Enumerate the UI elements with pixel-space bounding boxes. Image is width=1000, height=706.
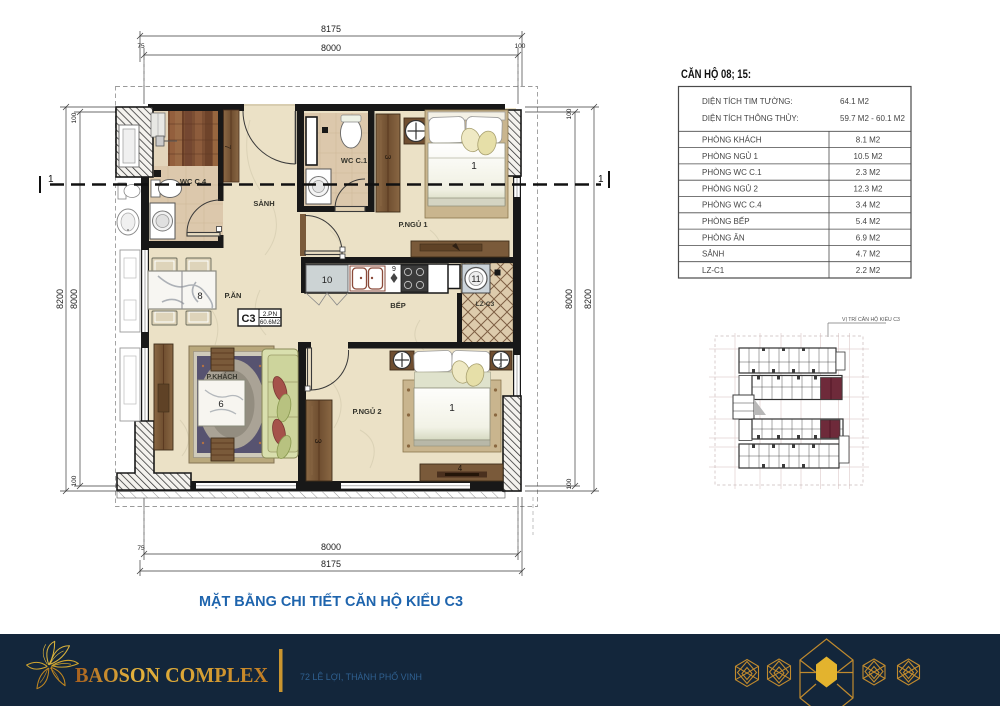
svg-text:SẢNH: SẢNH	[253, 199, 274, 208]
svg-text:1: 1	[598, 174, 604, 185]
svg-text:LZ-C3: LZ-C3	[476, 301, 495, 308]
svg-text:SẢNH: SẢNH	[702, 250, 724, 259]
svg-text:8175: 8175	[321, 24, 341, 34]
svg-text:100: 100	[71, 112, 78, 123]
svg-text:4.7 M2: 4.7 M2	[856, 250, 881, 259]
svg-text:10.5 M2: 10.5 M2	[854, 152, 883, 161]
svg-text:1: 1	[48, 174, 54, 185]
svg-text:8000: 8000	[321, 43, 341, 53]
svg-text:DIỆN TÍCH TIM TƯỜNG:: DIỆN TÍCH TIM TƯỜNG:	[702, 97, 793, 106]
svg-text:7: 7	[223, 145, 232, 150]
svg-text:60.6M2: 60.6M2	[260, 320, 281, 326]
svg-text:100: 100	[566, 478, 573, 489]
svg-text:2.2 M2: 2.2 M2	[856, 266, 881, 275]
svg-text:WC C.1: WC C.1	[341, 156, 367, 165]
svg-text:6: 6	[218, 399, 223, 410]
svg-text:2.PN: 2.PN	[263, 311, 278, 318]
svg-text:8200: 8200	[583, 289, 593, 309]
svg-text:P.ĂN: P.ĂN	[225, 291, 242, 300]
svg-text:100: 100	[515, 43, 526, 50]
svg-text:64.1 M2: 64.1 M2	[840, 97, 869, 106]
svg-text:CĂN HỘ 08; 15:: CĂN HỘ 08; 15:	[681, 66, 751, 81]
svg-text:9: 9	[392, 266, 396, 273]
svg-text:5.4 M2: 5.4 M2	[856, 217, 881, 226]
svg-text:BẾP: BẾP	[390, 300, 405, 310]
svg-text:12.3 M2: 12.3 M2	[854, 184, 883, 193]
svg-text:8175: 8175	[321, 559, 341, 569]
svg-text:P.KHÁCH: P.KHÁCH	[207, 372, 238, 381]
svg-text:3.4 M2: 3.4 M2	[856, 201, 881, 210]
svg-text:VỊ TRÍ CĂN HỘ KIỂU C3: VỊ TRÍ CĂN HỘ KIỂU C3	[842, 316, 900, 323]
svg-text:75: 75	[137, 545, 145, 552]
svg-text:2.3 M2: 2.3 M2	[856, 168, 881, 177]
svg-text:PHÒNG BẾP: PHÒNG BẾP	[702, 216, 750, 226]
svg-text:1: 1	[471, 161, 477, 172]
svg-text:59.7 M2 - 60.1 M2: 59.7 M2 - 60.1 M2	[840, 114, 905, 123]
svg-text:PHÒNG WC C.1: PHÒNG WC C.1	[702, 168, 762, 177]
svg-text:75: 75	[137, 43, 145, 50]
svg-text:3: 3	[383, 155, 393, 160]
svg-text:C3: C3	[241, 313, 255, 325]
svg-text:MẶT BẰNG CHI TIẾT CĂN HỘ KIỂU: MẶT BẰNG CHI TIẾT CĂN HỘ KIỂU C3	[199, 592, 463, 610]
svg-text:8000: 8000	[564, 289, 574, 309]
svg-text:P.NGỦ 2: P.NGỦ 2	[352, 407, 381, 416]
svg-text:4: 4	[458, 464, 463, 473]
svg-text:BAOSON COMPLEX: BAOSON COMPLEX	[75, 663, 268, 687]
svg-text:8.1 M2: 8.1 M2	[856, 136, 881, 145]
svg-text:10: 10	[322, 275, 333, 286]
svg-text:8000: 8000	[69, 289, 79, 309]
svg-text:DIỆN TÍCH THÔNG THỦY:: DIỆN TÍCH THÔNG THỦY:	[702, 114, 798, 123]
svg-text:8200: 8200	[55, 289, 65, 309]
svg-text:PHÒNG ĂN: PHÒNG ĂN	[702, 233, 745, 242]
svg-text:3: 3	[313, 438, 323, 443]
svg-text:PHÒNG WC C.4: PHÒNG WC C.4	[702, 201, 762, 210]
svg-text:72 LÊ LỢI, THÀNH PHỐ VINH: 72 LÊ LỢI, THÀNH PHỐ VINH	[300, 671, 422, 683]
svg-text:11: 11	[471, 274, 480, 284]
svg-text:P.NGỦ 1: P.NGỦ 1	[398, 220, 427, 229]
svg-text:1: 1	[449, 403, 455, 414]
svg-text:PHÒNG NGỦ 1: PHÒNG NGỦ 1	[702, 152, 759, 161]
svg-text:100: 100	[71, 475, 78, 486]
svg-text:PHÒNG NGỦ 2: PHÒNG NGỦ 2	[702, 184, 759, 193]
svg-text:PHÒNG KHÁCH: PHÒNG KHÁCH	[702, 136, 762, 145]
svg-text:8: 8	[197, 291, 202, 302]
svg-text:LZ-C1: LZ-C1	[702, 266, 725, 275]
svg-text:100: 100	[566, 108, 573, 119]
svg-text:6.9 M2: 6.9 M2	[856, 233, 881, 242]
svg-text:8000: 8000	[321, 542, 341, 552]
